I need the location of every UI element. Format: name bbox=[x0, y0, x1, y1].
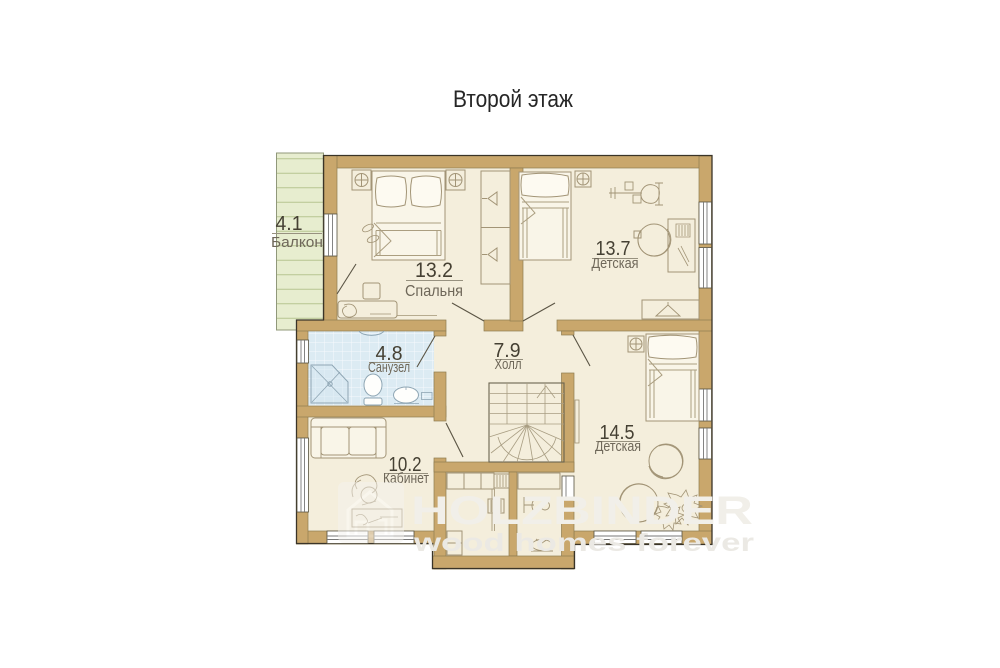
svg-text:Второй этаж: Второй этаж bbox=[453, 86, 573, 113]
svg-text:Детская: Детская bbox=[592, 255, 639, 272]
svg-text:HOLZBINDER: HOLZBINDER bbox=[411, 489, 753, 533]
svg-text:Холл: Холл bbox=[495, 356, 522, 373]
svg-text:Детская: Детская bbox=[595, 438, 641, 455]
svg-text:wood homes forever: wood homes forever bbox=[413, 529, 755, 557]
svg-text:4.1: 4.1 bbox=[276, 213, 303, 235]
svg-text:13.2: 13.2 bbox=[415, 259, 453, 282]
svg-text:Спальня: Спальня bbox=[405, 283, 463, 300]
svg-text:Балкон: Балкон bbox=[271, 234, 323, 251]
svg-text:Санузел: Санузел bbox=[368, 359, 410, 376]
